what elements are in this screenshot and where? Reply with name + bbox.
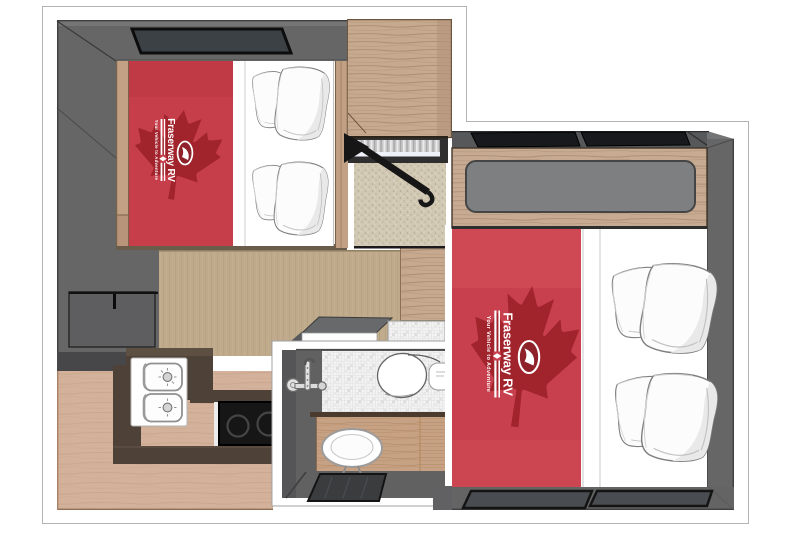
svg-text:Your Vehicle to Adventure: Your Vehicle to Adventure [154, 120, 159, 181]
svg-text:Your Vehicle to Adventure: Your Vehicle to Adventure [485, 316, 491, 393]
svg-text:Fraserway RV: Fraserway RV [165, 118, 176, 182]
svg-text:Fraserway RV: Fraserway RV [501, 312, 516, 396]
